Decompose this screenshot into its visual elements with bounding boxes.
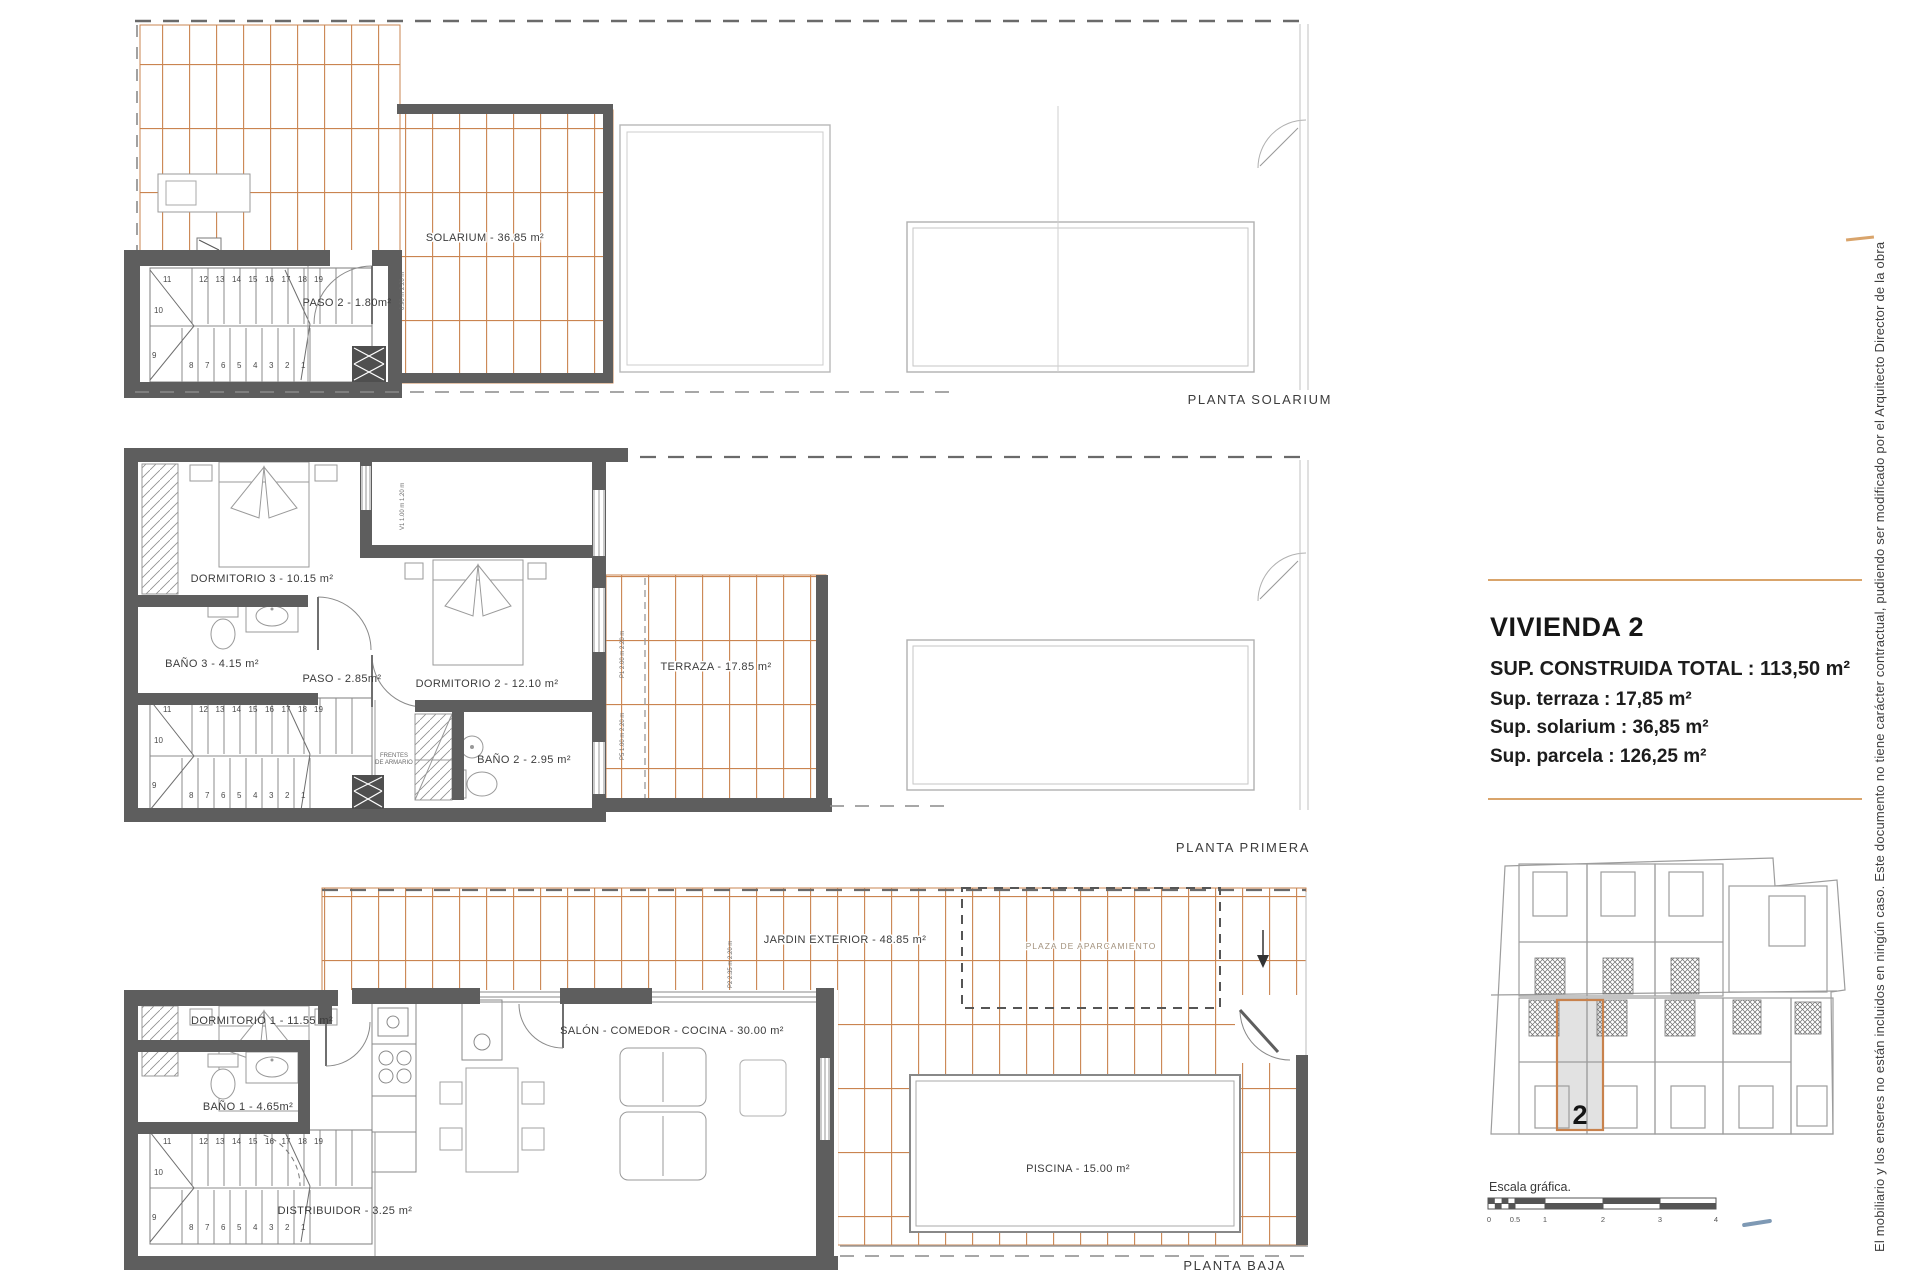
stair-step-number: 16 bbox=[265, 275, 274, 284]
plan-title-baja: PLANTA BAJA bbox=[1183, 1258, 1286, 1273]
stair-step-number: 18 bbox=[298, 1137, 307, 1146]
stair-step-number: 11 bbox=[163, 275, 172, 284]
roof-access-hatch bbox=[197, 238, 221, 252]
site-plan: 2 bbox=[1475, 842, 1865, 1160]
plan-sheet: 11121314151617181987654321109 bbox=[0, 0, 1920, 1280]
stair-step-number: 9 bbox=[152, 351, 157, 360]
context-neighbour-terrace bbox=[620, 125, 830, 372]
stair-step-number: 15 bbox=[249, 1137, 258, 1146]
label-p2: P2 2.35 m 2.20 m bbox=[728, 941, 734, 988]
sidebar-divider-bottom bbox=[1488, 798, 1862, 800]
context-entrance-primera bbox=[1258, 460, 1308, 810]
scale-label: Escala gráfica. bbox=[1489, 1180, 1571, 1194]
toilet-bath3 bbox=[208, 604, 238, 649]
scale-tick-0: 0 bbox=[1487, 1215, 1491, 1224]
stair-step-number: 10 bbox=[154, 1168, 163, 1177]
stair-step-number: 11 bbox=[163, 1137, 172, 1146]
label-dormitorio3: DORMITORIO 3 - 10.15 m² bbox=[191, 573, 334, 585]
sidebar-divider-top bbox=[1488, 579, 1862, 581]
label-plaza-aparcamiento: PLAZA DE APARCAMIENTO bbox=[1026, 941, 1157, 951]
label-armario-2: DE ARMARIO bbox=[375, 760, 413, 766]
scale-tick-3: 3 bbox=[1658, 1215, 1662, 1224]
stair-step-number: 6 bbox=[221, 361, 226, 370]
spec-built-area: SUP. CONSTRUIDA TOTAL : 113,50 m² bbox=[1490, 658, 1850, 681]
stair-step-number: 5 bbox=[237, 1223, 242, 1232]
toilet-bath1 bbox=[208, 1054, 238, 1099]
stair-step-number: 18 bbox=[298, 705, 307, 714]
kitchen-island bbox=[462, 1000, 502, 1060]
stair-step-number: 16 bbox=[265, 705, 274, 714]
scale-tick-05: 0.5 bbox=[1510, 1215, 1520, 1224]
scale-bar-ticks: 0 0.5 1 2 3 4 bbox=[1487, 1215, 1718, 1224]
stair-step-number: 15 bbox=[249, 275, 258, 284]
label-p5: P5 1.00 m 2.20 m bbox=[620, 713, 626, 760]
sink-bath1 bbox=[246, 1052, 298, 1083]
label-salon: SALÓN - COMEDOR - COCINA - 30.00 m² bbox=[560, 1024, 784, 1037]
plan-primera: 11121314151617181987654321109 bbox=[124, 448, 1310, 855]
stair-step-number: 15 bbox=[249, 705, 258, 714]
stair-step-number: 10 bbox=[154, 306, 163, 315]
stair-step-number: 12 bbox=[199, 1137, 208, 1146]
label-piscina: PISCINA - 15.00 m² bbox=[1026, 1163, 1130, 1175]
stair-step-number: 17 bbox=[282, 705, 291, 714]
label-terraza: TERRAZA - 17.85 m² bbox=[660, 661, 771, 673]
stair-step-number: 6 bbox=[221, 791, 226, 800]
stair-step-number: 7 bbox=[205, 361, 210, 370]
stair-step-number: 4 bbox=[253, 791, 258, 800]
stair-step-number: 14 bbox=[232, 1137, 241, 1146]
label-distribuidor: DISTRIBUIDOR - 3.25 m² bbox=[278, 1205, 413, 1217]
stair-step-number: 9 bbox=[152, 1213, 157, 1222]
pool bbox=[910, 1075, 1240, 1232]
stair-step-number: 19 bbox=[314, 275, 323, 284]
label-bano2: BAÑO 2 - 2.95 m² bbox=[477, 753, 571, 766]
elevator-shaft bbox=[352, 346, 386, 382]
stair-step-number: 17 bbox=[282, 1137, 291, 1146]
stair-step-number: 3 bbox=[269, 1223, 274, 1232]
stair-step-number: 16 bbox=[265, 1137, 274, 1146]
stair-step-number: 9 bbox=[152, 781, 157, 790]
label-bano1: BAÑO 1 - 4.65m² bbox=[203, 1100, 293, 1113]
stair-step-number: 1 bbox=[301, 791, 306, 800]
plan-title-primera: PLANTA PRIMERA bbox=[1176, 840, 1310, 855]
unit-title: VIVIENDA 2 bbox=[1490, 612, 1644, 643]
stair-step-number: 2 bbox=[285, 361, 290, 370]
stair-step-number: 8 bbox=[189, 1223, 194, 1232]
terraza-grid bbox=[604, 575, 832, 812]
stair-step-number: 14 bbox=[232, 705, 241, 714]
kitchen-counter bbox=[372, 1002, 416, 1172]
stair-step-number: 18 bbox=[298, 275, 307, 284]
plan-title-solarium: PLANTA SOLARIUM bbox=[1188, 392, 1332, 407]
stair-step-number: 2 bbox=[285, 1223, 290, 1232]
stair-step-number: 7 bbox=[205, 1223, 210, 1232]
plan-baja: 11121314151617181987654321109 bbox=[124, 888, 1308, 1273]
label-paso2: PASO 2 - 1.80m² bbox=[303, 297, 392, 309]
stair-step-number: 3 bbox=[269, 791, 274, 800]
stair-step-number: 1 bbox=[301, 361, 306, 370]
stair-step-number: 7 bbox=[205, 791, 210, 800]
label-paso: PASO - 2.85m² bbox=[303, 673, 382, 685]
context-entrance-top bbox=[1258, 24, 1308, 390]
elevator-shaft-primera bbox=[352, 775, 384, 809]
spec-terraza: Sup. terraza : 17,85 m² bbox=[1490, 689, 1692, 711]
stair-step-number: 17 bbox=[282, 275, 291, 284]
stair-step-number: 19 bbox=[314, 1137, 323, 1146]
context-pool-primera bbox=[907, 640, 1254, 790]
scale-bar: 0 0.5 1 2 3 4 bbox=[1486, 1196, 1736, 1236]
stair-step-number: 12 bbox=[199, 705, 208, 714]
stair-step-number: 13 bbox=[216, 275, 225, 284]
label-p1: P1 2.00 m 2.20 m bbox=[620, 631, 626, 678]
disclaimer-note: El mobiliario y los enseres no están inc… bbox=[1872, 242, 1887, 1252]
stair-step-number: 14 bbox=[232, 275, 241, 284]
label-bano3: BAÑO 3 - 4.15 m² bbox=[165, 657, 259, 670]
stair-step-number: 3 bbox=[269, 361, 274, 370]
bed-dorm3 bbox=[219, 462, 309, 567]
label-jardin: JARDIN EXTERIOR - 48.85 m² bbox=[764, 934, 927, 946]
label-dormitorio1: DORMITORIO 1 - 11.55 m² bbox=[191, 1015, 333, 1027]
bed-dorm2 bbox=[433, 560, 523, 665]
stair-step-number: 10 bbox=[154, 736, 163, 745]
stair-step-number: 11 bbox=[163, 705, 172, 714]
spec-parcela: Sup. parcela : 126,25 m² bbox=[1490, 746, 1707, 768]
highlighted-unit-number: 2 bbox=[1572, 1100, 1587, 1130]
stair-step-number: 13 bbox=[216, 705, 225, 714]
label-door-note: 0.90 m 2.20 m bbox=[400, 272, 406, 310]
label-armario-1: FRENTES bbox=[380, 753, 408, 759]
context-pool-outline bbox=[907, 222, 1254, 372]
stair-step-number: 5 bbox=[237, 791, 242, 800]
stair-step-number: 2 bbox=[285, 791, 290, 800]
stair-step-number: 13 bbox=[216, 1137, 225, 1146]
stair-step-number: 4 bbox=[253, 361, 258, 370]
scale-tick-1: 1 bbox=[1543, 1215, 1547, 1224]
stair-step-number: 8 bbox=[189, 791, 194, 800]
stair-step-number: 6 bbox=[221, 1223, 226, 1232]
label-solarium: SOLARIUM - 36.85 m² bbox=[426, 232, 544, 244]
scale-tick-4: 4 bbox=[1714, 1215, 1718, 1224]
wardrobe-dorm3 bbox=[142, 464, 178, 594]
stair-step-number: 4 bbox=[253, 1223, 258, 1232]
spec-solarium: Sup. solarium : 36,85 m² bbox=[1490, 717, 1709, 739]
label-dormitorio2: DORMITORIO 2 - 12.10 m² bbox=[416, 678, 559, 690]
stair-step-number: 12 bbox=[199, 275, 208, 284]
stair-step-number: 19 bbox=[314, 705, 323, 714]
label-v1: V1 1.00 m 1.20 m bbox=[400, 483, 406, 530]
site-plan-buildings bbox=[1491, 858, 1845, 1134]
scale-tick-2: 2 bbox=[1601, 1215, 1605, 1224]
plan-solarium: 11121314151617181987654321109 bbox=[124, 21, 1332, 407]
stair-step-number: 5 bbox=[237, 361, 242, 370]
stair-step-number: 8 bbox=[189, 361, 194, 370]
stair-step-number: 1 bbox=[301, 1223, 306, 1232]
